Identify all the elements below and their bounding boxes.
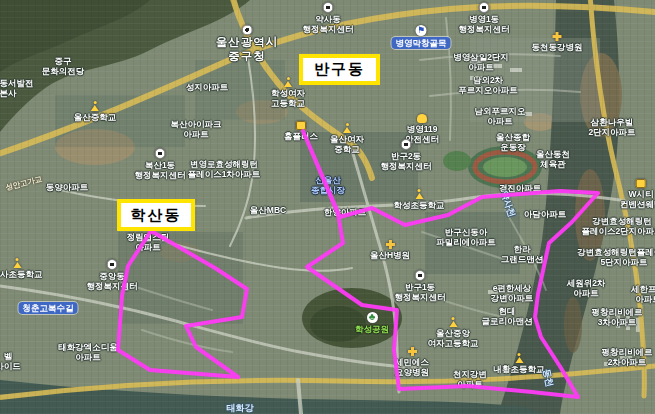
ulsan-middle-school[interactable]: 울산중학교 (74, 102, 117, 122)
market-icon (636, 179, 646, 188)
byeonyeongno-hyosung-harrington-place1-apt-text: 변영로효성해링턴 (190, 159, 258, 169)
naehwang-elementary-school-text: 내황초등학교 (494, 364, 545, 374)
taehwagang-exodium-apt[interactable]: 태화강엑소디움아파트 (58, 342, 118, 362)
boksan1-dong-center-text: 복산1동 (145, 160, 175, 170)
ulsan-sports-complex[interactable]: 울산종합운동장 (496, 132, 530, 152)
center-icon (107, 259, 118, 270)
samhwan-nauvill-2danji-apt-text: 삼환나우빌 (591, 117, 634, 127)
sehan-apt-text: 아파트 (635, 294, 655, 304)
pyeongchang-riviere-2cha-apt-text: 2차아파트 (608, 357, 647, 367)
yaksa-dong-center[interactable]: 약사동행정복지센터 (303, 2, 354, 34)
sewon-2cha-apt-text: 아파트 (573, 288, 599, 298)
center-icon (323, 2, 334, 13)
haksan-dong-label: 학산동 (117, 199, 195, 231)
pyeongchang-riviere-2cha-apt[interactable]: 평창리비에르2차아파트 (602, 347, 653, 367)
school-icon (90, 102, 100, 111)
taehwa-river-text: 태화강 (227, 403, 254, 414)
byeongyeong1-dong-center-text: 병영1동 (469, 14, 499, 24)
yaksa-dong-center-text: 행정복지센터 (303, 24, 354, 34)
bangu-shindonga-famille-apt-text: 반구신동아 (445, 227, 488, 237)
adam-apt[interactable]: 아담아파트 (524, 209, 567, 219)
ulsan-sports-complex-text: 울산종합 (496, 132, 530, 142)
gangbyeon-hyosung-harrington-place5-apt[interactable]: 강변효성해링턴플레이스5단지아파트 (577, 247, 655, 267)
ulsan-mbc-text: 울산MBC (250, 205, 286, 215)
bangu1-dong-center-text: 반구1동 (405, 282, 435, 292)
ulsan-dongcheon-gym-text: 체육관 (540, 159, 566, 169)
sehan-apt-text: 세한프라 (631, 284, 655, 294)
dongcheon-river: 동천 (541, 368, 555, 388)
bangu-shindonga-famille-apt-text: 파밀리에아파트 (436, 237, 496, 247)
boksan1-dong-center-text: 행정복지센터 (135, 170, 186, 180)
boksan1-dong-center[interactable]: 복산1동행정복지센터 (135, 148, 186, 180)
jeongrim-epsteel-apt-text: 아파트 (135, 242, 161, 252)
dongseo-power-hq-text: 본사 (0, 88, 17, 98)
seongan-overpass-road-text: 성안고가교 (5, 175, 44, 193)
hyundai-gloria-mansion[interactable]: 현대글로리아맨션 (482, 306, 533, 326)
pyeongchang-riviere-3cha-apt-text: 3차아파트 (598, 317, 637, 327)
hakseong-park[interactable]: ♣학성공원 (355, 312, 389, 334)
yaksa-stream: 약사천 (499, 190, 517, 219)
center-icon (401, 139, 412, 150)
halla-grand-mansion-text: 한라 (514, 244, 531, 254)
epyeonhansesang-gangbyeon-apt-text: 강변아파트 (491, 293, 534, 303)
ulsan-dongcheon-gym-text: 울산동천 (536, 149, 570, 159)
junggu-culture-hall-text: 중구 (55, 56, 72, 66)
ulsan-dongcheon-gym[interactable]: 울산동천체육관 (536, 149, 570, 169)
bangu-shindonga-famille-apt[interactable]: 반구신동아파밀리에아파트 (436, 227, 496, 247)
center-icon (415, 270, 426, 281)
pyeongchang-riviere-3cha-apt-text: 평창리비에르 (592, 307, 643, 317)
dongyang-apt-text: 동양아파트 (46, 182, 89, 192)
namoe-prugio-apt-text: 아파트 (487, 116, 513, 126)
jeongrim-epsteel-apt-text: 정림엡스틸 (127, 232, 170, 242)
sewon-2cha-apt-text: 세원위2차 (567, 278, 606, 288)
hyundai-gloria-mansion-text: 현대 (499, 306, 516, 316)
junggu-culture-hall[interactable]: 중구문화의전당 (42, 56, 85, 76)
riverside-apt[interactable]: 벨사이드 (0, 351, 21, 371)
jungang-dong-center-text: 행정복지센터 (87, 281, 138, 291)
market-icon (296, 121, 306, 130)
center-icon (242, 24, 253, 35)
ulsan-girls-middle-school[interactable]: 울산여자중학교 (330, 124, 364, 154)
hakseong-elementary-school[interactable]: 학성초등학교 (394, 190, 445, 210)
riverside-apt-text: 벨 (4, 351, 13, 361)
bangu2-dong-center[interactable]: 반구2동행정복지센터 (381, 139, 432, 171)
cross-icon (385, 240, 394, 249)
wcity-convention-wedding-text: 컨벤션웨딩 (620, 199, 655, 209)
wcity-convention-wedding[interactable]: W시티컨벤션웨딩 (620, 179, 655, 209)
ulsan-sports-complex-text: 운동장 (500, 142, 526, 152)
taehwagang-exodium-apt-text: 태화강엑소디움 (58, 342, 118, 352)
seongan-overpass-road: 성안고가교 (5, 175, 44, 193)
taehwa-river: 태화강 (227, 403, 254, 414)
byeongyeong-samil-2danji-apt[interactable]: 병영삼일2단지아파트 (453, 52, 509, 72)
byeongyeong-119-safety-center-text: 병영119 (407, 124, 438, 134)
semin-s-nursing-hospital[interactable]: 세민에스요양병원 (395, 347, 429, 377)
cheonji-gangbyeon-apt-text: 천지강변 (453, 369, 487, 379)
dongcheon-river-text: 동천 (541, 368, 555, 388)
cheonji-gangbyeon-apt[interactable]: 천지강변아파트 (453, 369, 487, 389)
byeonyeongno-hyosung-harrington-place1-apt-text: 플레이스1차아파트 (188, 169, 261, 179)
boksan-ipark-apt[interactable]: 복산아이파크아파트 (171, 119, 222, 139)
namoe-2cha-prugio-apt-text: 푸르지오아파트 (458, 85, 518, 95)
cross-icon (553, 32, 562, 41)
gangbyeon-hyosung-harrington-place2-apt-text: 플레이스2단지아파트 (581, 226, 655, 236)
dongseo-power-hq[interactable]: 한국동서발전본사 (0, 78, 34, 98)
byeongyeong-samil-2danji-apt-text: 병영삼일2단지 (453, 52, 509, 62)
seongji-apt[interactable]: 성지아파트 (186, 82, 229, 92)
sinulsan-market-text: 종합시장 (311, 185, 345, 195)
cross-icon (408, 347, 417, 356)
hanyang-apt-text: 한양아파트 (324, 207, 367, 217)
gangbyeon-hyosung-harrington-place2-apt-text: 강변효성해링턴 (592, 216, 652, 226)
byeongyeong1-dong-center[interactable]: 병영1동행정복지센터 (459, 2, 510, 34)
dongcheon-donggang-hospital-text: 동천동강병원 (532, 42, 583, 52)
hakseong-elementary-school-text: 학성초등학교 (394, 200, 445, 210)
yaksa-dong-center-text: 약사동 (315, 14, 341, 24)
ulsan-junggu-office-text: 중구청 (228, 50, 266, 64)
naehwang-elementary-school[interactable]: 내황초등학교 (494, 354, 545, 374)
riverside-apt-text: 사이드 (0, 361, 21, 371)
boksan-ipark-apt-text: 아파트 (183, 129, 209, 139)
pyeongchang-riviere-3cha-apt[interactable]: 평창리비에르3차아파트 (592, 307, 643, 327)
taehwagang-exodium-apt-text: 아파트 (75, 352, 101, 362)
bangu2-dong-center-text: 행정복지센터 (381, 161, 432, 171)
bangu-dong-label: 반구동 (299, 54, 380, 85)
semin-s-nursing-hospital-text: 세민에스 (395, 357, 429, 367)
epyeonhansesang-gangbyeon-apt-text: e편한세상 (493, 283, 532, 293)
byeongyeong-samil-2danji-apt-text: 아파트 (468, 62, 494, 72)
sinulsan-market[interactable]: 신울산종합시장 (311, 175, 345, 195)
bangu1-dong-center[interactable]: 반구1동행정복지센터 (395, 270, 446, 302)
byeonyeongno-hyosung-harrington-place1-apt[interactable]: 변영로효성해링턴플레이스1차아파트 (188, 159, 261, 179)
yangsa-elementary-school-text: 양사초등학교 (0, 269, 43, 279)
sehan-apt[interactable]: 세한프라아파트 (631, 284, 655, 304)
ulsan-junggu-office[interactable]: 울산광역시중구청 (216, 24, 279, 63)
tree-icon: ♣ (367, 312, 378, 323)
wcity-convention-wedding-text: W시티 (628, 189, 653, 199)
hakseong-park-text: 학성공원 (355, 324, 389, 334)
adam-apt-text: 아담아파트 (524, 209, 567, 219)
ulsan-jungang-girls-high-school[interactable]: 울산중앙여자고등학교 (428, 318, 479, 348)
sewon-2cha-apt[interactable]: 세원위2차아파트 (567, 278, 606, 298)
ulsan-jungang-girls-high-school-text: 여자고등학교 (428, 338, 479, 348)
ulsan-girls-middle-school-text: 중학교 (334, 144, 360, 154)
ulsan-girls-middle-school-text: 울산여자 (330, 134, 364, 144)
byeongyeong-makchang-alley-text: 병영막창골목 (392, 37, 451, 49)
center-icon (155, 148, 166, 159)
bangu2-dong-center-text: 반구2동 (391, 151, 421, 161)
cheongchun-gobeoksu-gil-text: 청춘고복수길 (19, 302, 78, 314)
jungang-dong-center[interactable]: 중앙동행정복지센터 (87, 259, 138, 291)
namoe-2cha-prugio-apt[interactable]: 남외2차푸르지오아파트 (458, 75, 518, 95)
ulsan-jungang-girls-high-school-text: 울산중앙 (436, 328, 470, 338)
ulsan-junggu-office-text: 울산광역시 (216, 36, 279, 50)
gangbyeon-hyosung-harrington-place5-apt-text: 5단지아파트 (600, 257, 647, 267)
halla-grand-mansion[interactable]: 한라그랜드맨션 (501, 244, 544, 264)
sinulsan-market-text: 신울산 (315, 175, 341, 185)
school-icon (414, 190, 424, 199)
hanyang-apt[interactable]: 한양아파트 (324, 207, 367, 217)
semin-s-nursing-hospital-text: 요양병원 (395, 367, 429, 377)
school-icon (448, 318, 458, 327)
byeongyeong-makchang-alley[interactable]: ⚑병영막창골목 (392, 25, 451, 49)
byeongyeong1-dong-center-text: 행정복지센터 (459, 24, 510, 34)
jungang-dong-center-text: 중앙동 (99, 271, 125, 281)
school-icon (283, 78, 293, 87)
seongji-apt-text: 성지아파트 (186, 82, 229, 92)
satellite-map-canvas[interactable]: 중구문화의전당한국동서발전본사울산광역시중구청성지아파트학성여자고등학교울산중학… (0, 0, 655, 414)
samhwan-nauvill-2danji-apt[interactable]: 삼환나우빌2단지아파트 (588, 117, 635, 137)
yaksa-stream-text: 약사천 (499, 190, 517, 219)
namoe-prugio-apt-text: 남외푸르지오 (475, 106, 526, 116)
namoe-prugio-apt[interactable]: 남외푸르지오아파트 (475, 106, 526, 126)
gangbyeon-hyosung-harrington-place5-apt-text: 강변효성해링턴플레이스 (577, 247, 655, 257)
ulsan-mbc[interactable]: 울산MBC (250, 205, 286, 215)
bangu1-dong-center-text: 행정복지센터 (395, 292, 446, 302)
boksan-ipark-apt-text: 복산아이파크 (171, 119, 222, 129)
ulsan-h-hospital[interactable]: 울산H병원 (370, 240, 410, 260)
junggu-culture-hall-text: 문화의전당 (42, 66, 85, 76)
dongseo-power-hq-text: 한국동서발전 (0, 78, 34, 88)
homeplus-text: 홈플러스 (284, 131, 318, 141)
homeplus[interactable]: 홈플러스 (284, 121, 318, 141)
jeongrim-epsteel-apt[interactable]: 정림엡스틸아파트 (127, 232, 170, 252)
flag-icon: ⚑ (416, 25, 427, 36)
cheonji-gangbyeon-apt-text: 아파트 (457, 379, 483, 389)
ulsan-h-hospital-text: 울산H병원 (370, 250, 410, 260)
hakseong-girls-high-school-text: 학성여자 (271, 88, 305, 98)
halla-grand-mansion-text: 그랜드맨션 (501, 254, 544, 264)
namoe-2cha-prugio-apt-text: 남외2차 (473, 75, 503, 85)
dongcheon-donggang-hospital[interactable]: 동천동강병원 (532, 32, 583, 52)
cheongchun-gobeoksu-gil[interactable]: 청춘고복수길 (19, 302, 78, 314)
school-icon (342, 124, 352, 133)
yangsa-elementary-school[interactable]: 양사초등학교 (0, 259, 43, 279)
school-icon (12, 259, 22, 268)
epyeonhansesang-gangbyeon-apt[interactable]: e편한세상강변아파트 (491, 283, 534, 303)
fire-icon (417, 114, 427, 123)
ulsan-middle-school-text: 울산중학교 (74, 112, 117, 122)
dongyang-apt[interactable]: 동양아파트 (46, 182, 89, 192)
school-icon (514, 354, 524, 363)
center-icon (479, 2, 490, 13)
pyeongchang-riviere-2cha-apt-text: 평창리비에르 (602, 347, 653, 357)
samhwan-nauvill-2danji-apt-text: 2단지아파트 (588, 127, 635, 137)
hakseong-girls-high-school-text: 고등학교 (271, 98, 305, 108)
gangbyeon-hyosung-harrington-place2-apt[interactable]: 강변효성해링턴플레이스2단지아파트 (581, 216, 655, 236)
hyundai-gloria-mansion-text: 글로리아맨션 (482, 316, 533, 326)
